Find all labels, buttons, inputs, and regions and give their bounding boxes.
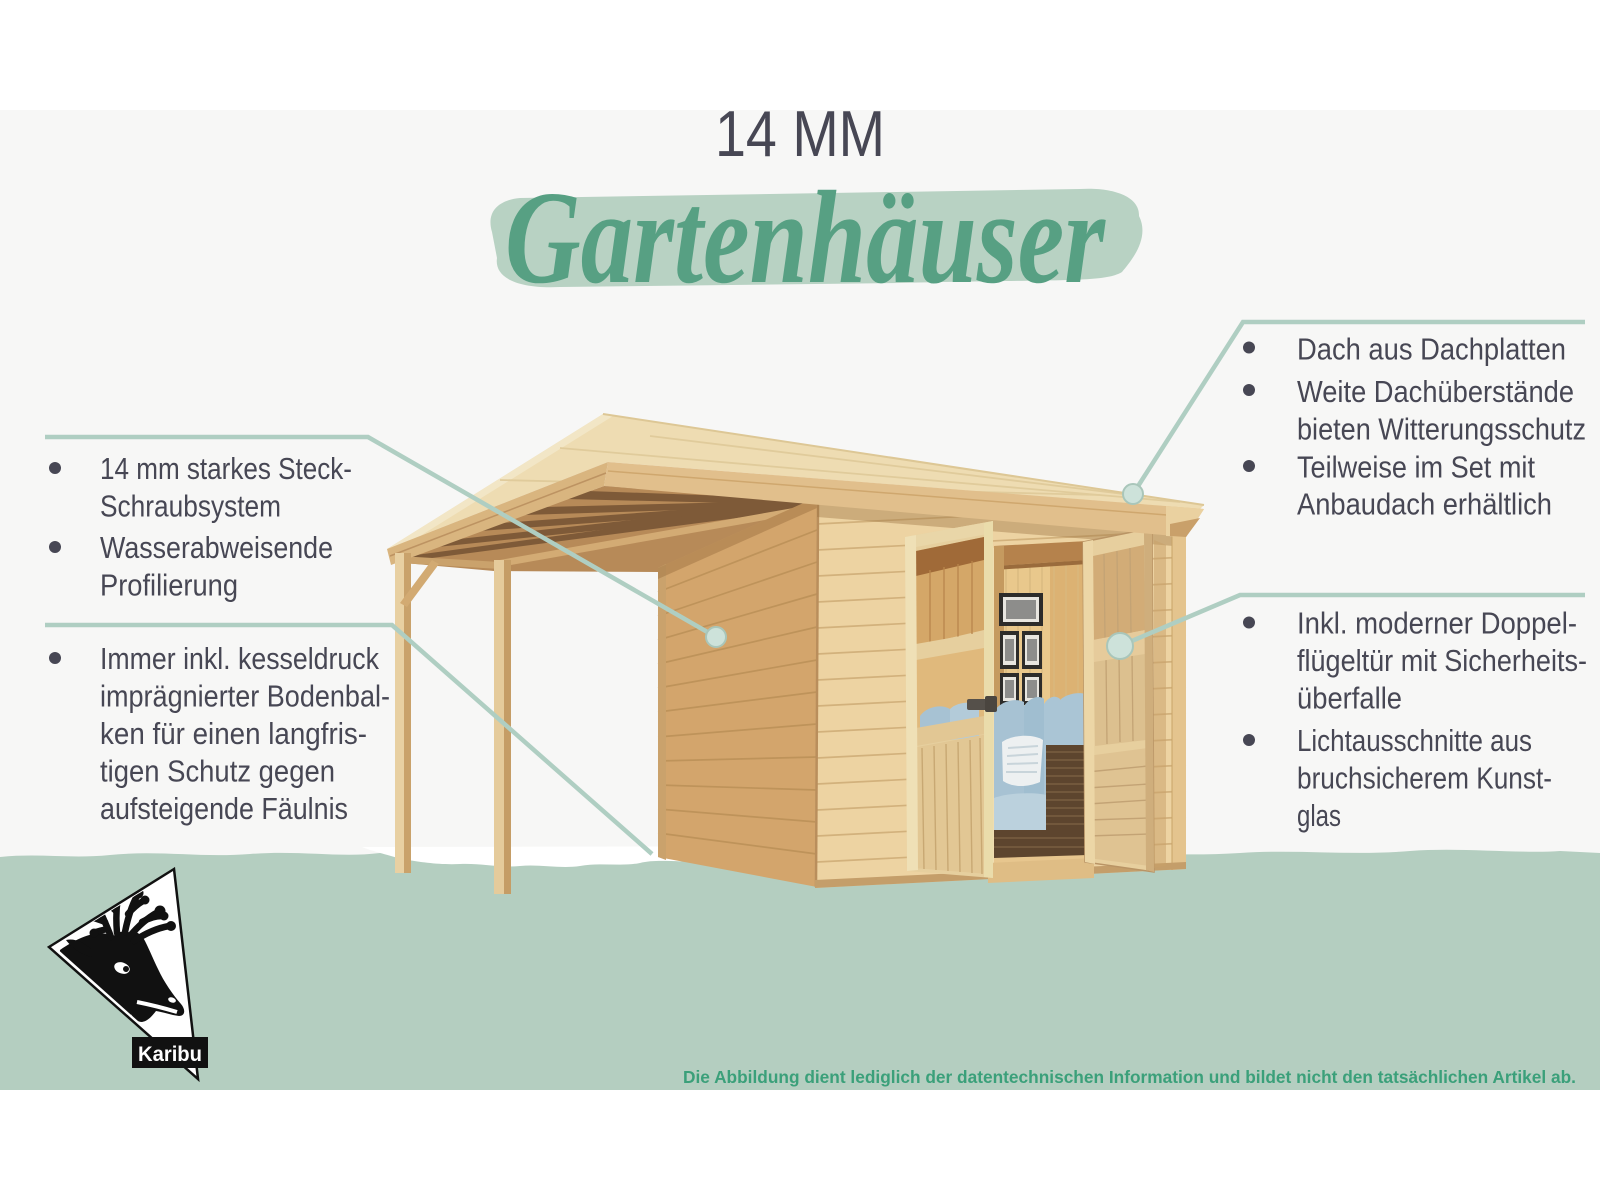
svg-text:bieten Witterungsschutz: bieten Witterungsschutz: [1297, 412, 1586, 447]
svg-text:Wasserabweisende: Wasserabweisende: [100, 530, 333, 565]
svg-text:Inkl. moderner Doppel-: Inkl. moderner Doppel-: [1297, 606, 1577, 641]
svg-text:Gartenhäuser: Gartenhäuser: [505, 163, 1106, 311]
svg-text:flügeltür mit Sicherheits-: flügeltür mit Sicherheits-: [1297, 643, 1587, 678]
svg-text:14 MM: 14 MM: [715, 97, 885, 170]
svg-text:Anbaudach erhältlich: Anbaudach erhältlich: [1297, 487, 1552, 522]
svg-text:glas: glas: [1297, 798, 1341, 833]
svg-text:überfalle: überfalle: [1297, 681, 1402, 716]
svg-text:14 mm starkes Steck-: 14 mm starkes Steck-: [100, 451, 352, 486]
svg-text:tigen Schutz gegen: tigen Schutz gegen: [100, 754, 335, 789]
svg-text:Dach aus Dachplatten: Dach aus Dachplatten: [1297, 332, 1566, 367]
svg-text:Schraubsystem: Schraubsystem: [100, 489, 281, 524]
svg-text:ken für einen langfris-: ken für einen langfris-: [100, 716, 367, 751]
svg-text:Weite Dachüberstände: Weite Dachüberstände: [1297, 374, 1574, 409]
svg-text:Lichtausschnitte aus: Lichtausschnitte aus: [1297, 723, 1532, 758]
svg-text:Die Abbildung dient lediglich: Die Abbildung dient lediglich der datent…: [683, 1067, 1576, 1087]
svg-text:Immer inkl. kesseldruck: Immer inkl. kesseldruck: [100, 641, 379, 676]
svg-text:Teilweise im Set mit: Teilweise im Set mit: [1297, 450, 1535, 485]
svg-text:imprägnierter Bodenbal-: imprägnierter Bodenbal-: [100, 679, 390, 714]
svg-text:bruchsicherem Kunst-: bruchsicherem Kunst-: [1297, 761, 1552, 796]
svg-text:aufsteigende Fäulnis: aufsteigende Fäulnis: [100, 791, 348, 826]
svg-text:Karibu: Karibu: [138, 1043, 202, 1066]
svg-text:Profilierung: Profilierung: [100, 568, 238, 603]
